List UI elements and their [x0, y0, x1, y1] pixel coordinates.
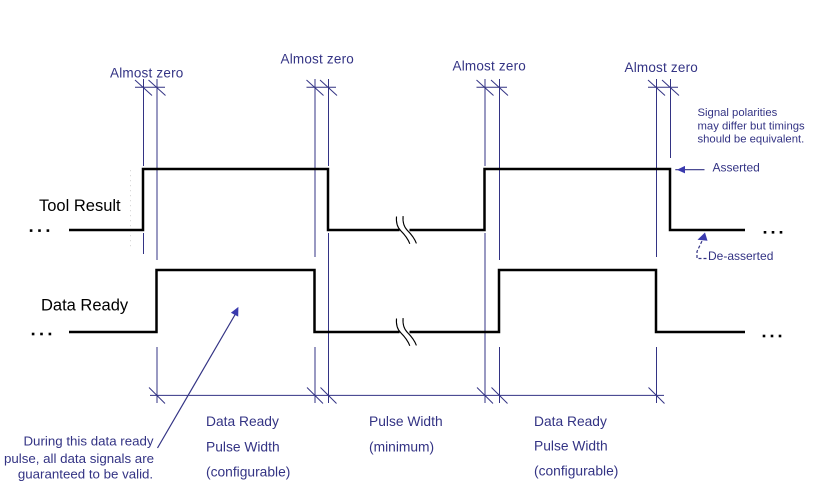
svg-text:should be equivalent.: should be equivalent.	[698, 134, 805, 146]
svg-text:Pulse Width: Pulse Width	[534, 439, 608, 454]
svg-text:pulse, all data signals are: pulse, all data signals are	[4, 451, 154, 466]
svg-text:Signal polarities: Signal polarities	[698, 107, 778, 119]
svg-text:Tool Result: Tool Result	[39, 197, 121, 215]
svg-text:guaranteed to be valid.: guaranteed to be valid.	[18, 467, 153, 482]
svg-text:Almost zero: Almost zero	[110, 66, 183, 81]
svg-text:Almost zero: Almost zero	[453, 59, 526, 74]
svg-text:Data Ready: Data Ready	[206, 414, 279, 429]
svg-text:Asserted: Asserted	[713, 161, 760, 175]
svg-text:(configurable): (configurable)	[534, 464, 618, 479]
svg-text:Data Ready: Data Ready	[534, 414, 607, 429]
svg-text:Data Ready: Data Ready	[41, 297, 129, 315]
svg-text:During this data ready: During this data ready	[23, 434, 153, 449]
svg-text:(configurable): (configurable)	[206, 465, 290, 480]
svg-text:De-asserted: De-asserted	[708, 249, 773, 263]
svg-text:(minimum): (minimum)	[369, 440, 434, 455]
svg-text:may differ but timings: may differ but timings	[698, 120, 806, 132]
svg-text:Almost zero: Almost zero	[281, 52, 354, 67]
svg-text:Almost zero: Almost zero	[625, 60, 698, 75]
svg-text:Pulse Width: Pulse Width	[206, 440, 280, 455]
svg-text:Pulse Width: Pulse Width	[369, 414, 443, 429]
